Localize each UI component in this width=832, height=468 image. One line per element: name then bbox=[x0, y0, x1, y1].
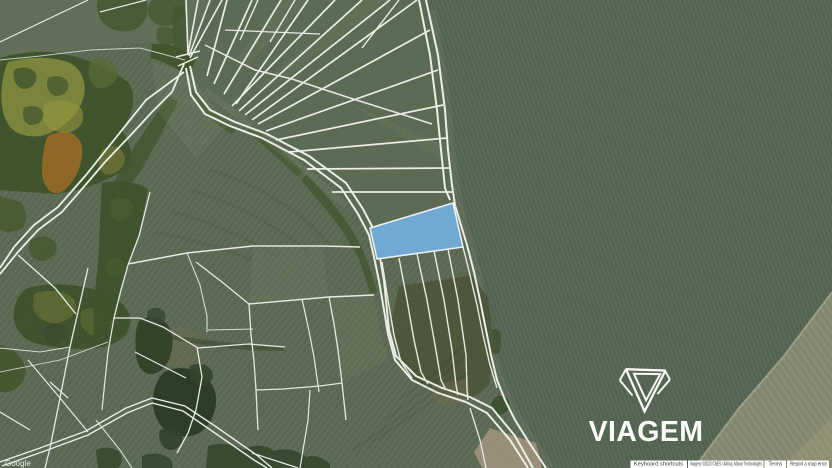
svg-text:Keyboard shortcuts: Keyboard shortcuts bbox=[634, 462, 684, 468]
svg-text:Google: Google bbox=[5, 459, 31, 468]
svg-text:Terms: Terms bbox=[769, 462, 783, 468]
svg-text:Report a map error: Report a map error bbox=[790, 462, 827, 468]
svg-text:VIAGEM: VIAGEM bbox=[589, 416, 704, 448]
svg-text:Imagery ©2023 CNES / Airbus, M: Imagery ©2023 CNES / Airbus, Maxar Techn… bbox=[690, 461, 762, 468]
